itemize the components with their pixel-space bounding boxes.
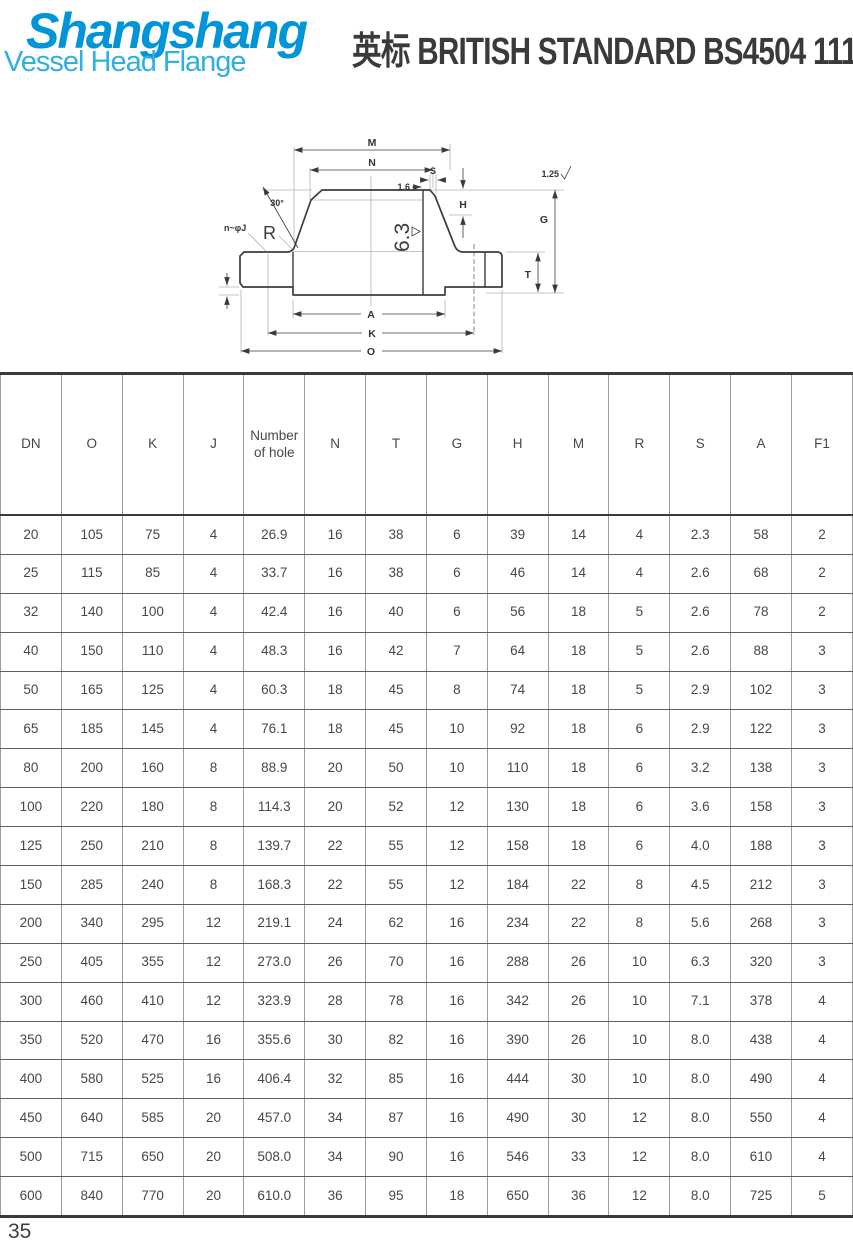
table-cell: 22 (548, 904, 609, 943)
table-cell: 220 (61, 788, 122, 827)
table-cell: 22 (305, 827, 366, 866)
table-cell: 34 (305, 1099, 366, 1138)
table-cell: 88 (731, 632, 792, 671)
table-cell: 150 (61, 632, 122, 671)
table-cell: 20 (183, 1177, 244, 1217)
table-cell: 715 (61, 1138, 122, 1177)
table-cell: 3 (791, 866, 852, 905)
page-title: 英标 BRITISH STANDARD BS4504 111 R F PN 16 (352, 20, 853, 75)
catalog-page: Shangshang Vessel Head Flange 英标 BRITISH… (0, 0, 853, 1252)
table-row: 65185145476.1184510921862.91223 (1, 710, 853, 749)
table-cell: 165 (61, 671, 122, 710)
table-cell: 4 (791, 1138, 852, 1177)
table-cell: 6 (426, 515, 487, 554)
table-cell: 725 (731, 1177, 792, 1217)
dim-label-h: H (459, 199, 467, 211)
table-cell: 115 (61, 554, 122, 593)
table-cell: 58 (731, 515, 792, 554)
dim-label-radius: R (263, 223, 276, 243)
table-cell: 340 (61, 904, 122, 943)
table-cell: 12 (609, 1099, 670, 1138)
table-header: DNOKJNumber of holeNTGHMRSAF1 (1, 374, 853, 516)
table-cell: 92 (487, 710, 548, 749)
table-cell: 42 (366, 632, 427, 671)
table-cell: 8 (183, 827, 244, 866)
col-header-s: S (670, 374, 731, 516)
table-cell: 4 (791, 1099, 852, 1138)
table-row: 20034029512219.12462162342285.62683 (1, 904, 853, 943)
surface-roughness-1-25: 1.25 (541, 169, 559, 179)
table-cell: 150 (1, 866, 62, 905)
table-cell: 6 (426, 593, 487, 632)
table-cell: 770 (122, 1177, 183, 1217)
table-cell: 410 (122, 982, 183, 1021)
table-cell: 12 (426, 788, 487, 827)
flange-inner-edges (293, 190, 485, 295)
table-cell: 18 (426, 1177, 487, 1217)
table-cell: 105 (61, 515, 122, 554)
table-cell: 234 (487, 904, 548, 943)
col-header-dn: DN (1, 374, 62, 516)
table-cell: 158 (487, 827, 548, 866)
table-cell: 12 (183, 943, 244, 982)
table-cell: 125 (122, 671, 183, 710)
table-cell: 460 (61, 982, 122, 1021)
table-row: 45064058520457.034871649030128.05504 (1, 1099, 853, 1138)
table-cell: 546 (487, 1138, 548, 1177)
table-row: 40150110448.316427641852.6883 (1, 632, 853, 671)
table-cell: 16 (305, 515, 366, 554)
table-cell: 78 (366, 982, 427, 1021)
table-cell: 16 (426, 1138, 487, 1177)
dim-label-bolt-holes: n~φJ (224, 223, 246, 233)
table-cell: 139.7 (244, 827, 305, 866)
table-cell: 38 (366, 554, 427, 593)
table-cell: 3 (791, 827, 852, 866)
table-cell: 56 (487, 593, 548, 632)
table-cell: 26 (548, 982, 609, 1021)
table-cell: 20 (183, 1099, 244, 1138)
page-number: 35 (8, 1220, 31, 1244)
table-cell: 8.0 (670, 1021, 731, 1060)
table-cell: 4 (183, 632, 244, 671)
table-cell: 4 (183, 593, 244, 632)
table-cell: 444 (487, 1060, 548, 1099)
table-cell: 16 (426, 904, 487, 943)
col-header-f1: F1 (791, 374, 852, 516)
table-cell: 4 (183, 515, 244, 554)
table-cell: 39 (487, 515, 548, 554)
table-cell: 188 (731, 827, 792, 866)
table-cell: 145 (122, 710, 183, 749)
dim-label-a: A (367, 309, 375, 321)
table-row: 80200160888.92050101101863.21383 (1, 749, 853, 788)
table-cell: 26 (548, 943, 609, 982)
table-cell: 32 (305, 1060, 366, 1099)
flange-dimension-table: DNOKJNumber of holeNTGHMRSAF1 2010575426… (0, 372, 853, 1218)
table-cell: 18 (548, 788, 609, 827)
table-cell: 10 (609, 943, 670, 982)
table-cell: 168.3 (244, 866, 305, 905)
table-cell: 26 (548, 1021, 609, 1060)
table-cell: 508.0 (244, 1138, 305, 1177)
table-cell: 140 (61, 593, 122, 632)
table-cell: 2.6 (670, 632, 731, 671)
table-cell: 102 (731, 671, 792, 710)
table-cell: 65 (1, 710, 62, 749)
table-cell: 6 (609, 710, 670, 749)
table-cell: 4 (183, 671, 244, 710)
table-cell: 180 (122, 788, 183, 827)
table-cell: 20 (305, 749, 366, 788)
col-header-a: A (731, 374, 792, 516)
table-cell: 580 (61, 1060, 122, 1099)
table-cell: 36 (548, 1177, 609, 1217)
dim-label-m: M (368, 137, 377, 149)
table-cell: 160 (122, 749, 183, 788)
table-cell: 28 (305, 982, 366, 1021)
dim-label-30deg: 30° (270, 198, 284, 208)
table-cell: 6 (609, 788, 670, 827)
logo-subtitle: Vessel Head Flange (4, 46, 246, 79)
table-cell: 550 (731, 1099, 792, 1138)
col-header-t: T (366, 374, 427, 516)
table-cell: 138 (731, 749, 792, 788)
table-cell: 22 (548, 866, 609, 905)
table-cell: 450 (1, 1099, 62, 1138)
col-header-m: M (548, 374, 609, 516)
table-cell: 38 (366, 515, 427, 554)
table-cell: 16 (426, 982, 487, 1021)
table-row: 25040535512273.026701628826106.33203 (1, 943, 853, 982)
table-row: 50165125460.318458741852.91023 (1, 671, 853, 710)
table-cell: 610 (731, 1138, 792, 1177)
dim-label-k: K (368, 328, 376, 340)
table-cell: 8.0 (670, 1099, 731, 1138)
table-cell: 16 (426, 1060, 487, 1099)
table-cell: 600 (1, 1177, 62, 1217)
table-cell: 46 (487, 554, 548, 593)
table-cell: 650 (122, 1138, 183, 1177)
table-cell: 273.0 (244, 943, 305, 982)
table-cell: 3.2 (670, 749, 731, 788)
table-cell: 125 (1, 827, 62, 866)
table-cell: 16 (305, 554, 366, 593)
table-cell: 2 (791, 554, 852, 593)
table-cell: 5 (609, 671, 670, 710)
table-cell: 585 (122, 1099, 183, 1138)
table-cell: 16 (305, 632, 366, 671)
table-cell: 285 (61, 866, 122, 905)
table-body: 2010575426.916386391442.35822511585433.7… (1, 515, 853, 1217)
table-cell: 10 (609, 982, 670, 1021)
table-cell: 3 (791, 710, 852, 749)
table-cell: 87 (366, 1099, 427, 1138)
table-cell: 110 (122, 632, 183, 671)
table-cell: 62 (366, 904, 427, 943)
table-cell: 5 (609, 593, 670, 632)
table-cell: 390 (487, 1021, 548, 1060)
col-header-o: O (61, 374, 122, 516)
table-cell: 438 (731, 1021, 792, 1060)
table-cell: 25 (1, 554, 62, 593)
table-cell: 18 (305, 710, 366, 749)
col-header-r: R (609, 374, 670, 516)
surface-roughness-6-3: 6.3 (391, 223, 414, 252)
dim-label-1-6: 1.6 (397, 182, 410, 192)
table-cell: 8 (183, 866, 244, 905)
table-cell: 32 (1, 593, 62, 632)
table-row: 1502852408168.32255121842284.52123 (1, 866, 853, 905)
table-cell: 30 (548, 1099, 609, 1138)
table-cell: 82 (366, 1021, 427, 1060)
table-cell: 85 (122, 554, 183, 593)
table-cell: 75 (122, 515, 183, 554)
table-cell: 3 (791, 788, 852, 827)
table-cell: 88.9 (244, 749, 305, 788)
table-cell: 7 (426, 632, 487, 671)
table-cell: 4 (609, 515, 670, 554)
table-cell: 184 (487, 866, 548, 905)
table-cell: 2 (791, 515, 852, 554)
table-cell: 6 (609, 749, 670, 788)
dim-label-t: T (525, 269, 532, 281)
table-row: 2010575426.916386391442.3582 (1, 515, 853, 554)
table-cell: 34 (305, 1138, 366, 1177)
table-row: 50071565020508.034901654633128.06104 (1, 1138, 853, 1177)
table-cell: 10 (426, 710, 487, 749)
table-row: 35052047016355.630821639026108.04384 (1, 1021, 853, 1060)
table-cell: 8.0 (670, 1177, 731, 1217)
table-cell: 10 (426, 749, 487, 788)
surface-finish-check-icon (561, 166, 571, 179)
table-cell: 457.0 (244, 1099, 305, 1138)
table-cell: 8 (609, 904, 670, 943)
col-header-n: N (305, 374, 366, 516)
table-cell: 3 (791, 943, 852, 982)
table-cell: 3.6 (670, 788, 731, 827)
table-cell: 8.0 (670, 1138, 731, 1177)
table-cell: 14 (548, 515, 609, 554)
table-cell: 6 (609, 827, 670, 866)
table-cell: 219.1 (244, 904, 305, 943)
col-header-h: H (487, 374, 548, 516)
table-cell: 405 (61, 943, 122, 982)
table-cell: 10 (609, 1060, 670, 1099)
table-cell: 16 (426, 1099, 487, 1138)
table-cell: 490 (731, 1060, 792, 1099)
table-cell: 40 (1, 632, 62, 671)
table-cell: 4 (791, 1060, 852, 1099)
table-cell: 8 (183, 788, 244, 827)
col-header-number-of-hole: Number of hole (244, 374, 305, 516)
table-row: 32140100442.416406561852.6782 (1, 593, 853, 632)
dim-label-s: S (430, 166, 436, 176)
table-row: 2511585433.716386461442.6682 (1, 554, 853, 593)
table-cell: 36 (305, 1177, 366, 1217)
table-cell: 26.9 (244, 515, 305, 554)
table-cell: 45 (366, 710, 427, 749)
table-cell: 18 (548, 827, 609, 866)
table-cell: 24 (305, 904, 366, 943)
title-english: BRITISH STANDARD BS4504 111 R F PN 16 (417, 31, 853, 73)
table-cell: 12 (609, 1138, 670, 1177)
table-cell: 74 (487, 671, 548, 710)
table-cell: 295 (122, 904, 183, 943)
table-cell: 323.9 (244, 982, 305, 1021)
table-cell: 18 (548, 749, 609, 788)
table-cell: 12 (426, 827, 487, 866)
dim-label-g: G (540, 214, 548, 226)
table-cell: 110 (487, 749, 548, 788)
table-cell: 4 (609, 554, 670, 593)
table-cell: 100 (122, 593, 183, 632)
table-cell: 400 (1, 1060, 62, 1099)
table-cell: 4 (791, 1021, 852, 1060)
table-cell: 4 (183, 554, 244, 593)
table-cell: 840 (61, 1177, 122, 1217)
table-cell: 200 (61, 749, 122, 788)
table-cell: 378 (731, 982, 792, 1021)
table-cell: 16 (426, 943, 487, 982)
table-row: 60084077020610.036951865036128.07255 (1, 1177, 853, 1217)
table-cell: 320 (731, 943, 792, 982)
table-cell: 2.9 (670, 671, 731, 710)
table-cell: 7.1 (670, 982, 731, 1021)
table-cell: 3 (791, 904, 852, 943)
table-cell: 48.3 (244, 632, 305, 671)
table-cell: 5.6 (670, 904, 731, 943)
dim-label-o: O (367, 346, 375, 358)
table-row: 1002201808114.32052121301863.61583 (1, 788, 853, 827)
table-cell: 8 (426, 671, 487, 710)
table-cell: 470 (122, 1021, 183, 1060)
flange-technical-drawing: M N S 1.6 30° n~φJ R 6.3 1.25 H G T A K … (200, 130, 630, 370)
table-cell: 55 (366, 827, 427, 866)
table-cell: 70 (366, 943, 427, 982)
table-cell: 5 (791, 1177, 852, 1217)
flange-cross-section-svg: M N S 1.6 30° n~φJ R 6.3 1.25 H G T A K … (200, 130, 630, 370)
table-cell: 8.0 (670, 1060, 731, 1099)
table-cell: 4.5 (670, 866, 731, 905)
table-cell: 60.3 (244, 671, 305, 710)
table-cell: 640 (61, 1099, 122, 1138)
table-cell: 18 (305, 671, 366, 710)
table-row: 40058052516406.432851644430108.04904 (1, 1060, 853, 1099)
table-cell: 16 (183, 1021, 244, 1060)
table-cell: 4.0 (670, 827, 731, 866)
table-cell: 55 (366, 866, 427, 905)
table-cell: 114.3 (244, 788, 305, 827)
table-cell: 30 (305, 1021, 366, 1060)
table-cell: 268 (731, 904, 792, 943)
table-cell: 490 (487, 1099, 548, 1138)
table-cell: 90 (366, 1138, 427, 1177)
table-cell: 6 (426, 554, 487, 593)
table-cell: 20 (1, 515, 62, 554)
table-cell: 100 (1, 788, 62, 827)
table-cell: 52 (366, 788, 427, 827)
table-cell: 130 (487, 788, 548, 827)
table-cell: 76.1 (244, 710, 305, 749)
table-cell: 2 (791, 593, 852, 632)
table-cell: 2.6 (670, 554, 731, 593)
col-header-j: J (183, 374, 244, 516)
table-cell: 10 (609, 1021, 670, 1060)
table-cell: 520 (61, 1021, 122, 1060)
table-cell: 3 (791, 749, 852, 788)
table-cell: 20 (183, 1138, 244, 1177)
table-cell: 3 (791, 632, 852, 671)
table-cell: 12 (183, 982, 244, 1021)
table-cell: 288 (487, 943, 548, 982)
dim-label-n: N (368, 157, 376, 169)
title-chinese: 英标 (352, 31, 410, 73)
table-cell: 240 (122, 866, 183, 905)
table-cell: 200 (1, 904, 62, 943)
table-cell: 42.4 (244, 593, 305, 632)
table-cell: 2.6 (670, 593, 731, 632)
table-cell: 3 (791, 671, 852, 710)
table-cell: 8 (183, 749, 244, 788)
table-cell: 33.7 (244, 554, 305, 593)
table-cell: 33 (548, 1138, 609, 1177)
table-cell: 212 (731, 866, 792, 905)
table-cell: 64 (487, 632, 548, 671)
table-cell: 18 (548, 593, 609, 632)
table-row: 30046041012323.928781634226107.13784 (1, 982, 853, 1021)
table-cell: 12 (609, 1177, 670, 1217)
table-cell: 525 (122, 1060, 183, 1099)
col-header-k: K (122, 374, 183, 516)
table-cell: 16 (426, 1021, 487, 1060)
table-cell: 80 (1, 749, 62, 788)
table-cell: 406.4 (244, 1060, 305, 1099)
table-cell: 50 (1, 671, 62, 710)
table-cell: 4 (183, 710, 244, 749)
table-cell: 14 (548, 554, 609, 593)
table-cell: 78 (731, 593, 792, 632)
table-cell: 350 (1, 1021, 62, 1060)
table-cell: 40 (366, 593, 427, 632)
table-cell: 8 (609, 866, 670, 905)
table-cell: 210 (122, 827, 183, 866)
table-cell: 12 (183, 904, 244, 943)
col-header-g: G (426, 374, 487, 516)
table-cell: 4 (791, 982, 852, 1021)
table-cell: 2.3 (670, 515, 731, 554)
table-cell: 95 (366, 1177, 427, 1217)
table-cell: 300 (1, 982, 62, 1021)
table-cell: 122 (731, 710, 792, 749)
table-cell: 6.3 (670, 943, 731, 982)
table-cell: 85 (366, 1060, 427, 1099)
table-cell: 18 (548, 632, 609, 671)
table-cell: 250 (1, 943, 62, 982)
table-cell: 2.9 (670, 710, 731, 749)
radius-leader (279, 236, 292, 249)
table-cell: 16 (183, 1060, 244, 1099)
table-cell: 12 (426, 866, 487, 905)
table-cell: 22 (305, 866, 366, 905)
table-cell: 16 (305, 593, 366, 632)
table-cell: 342 (487, 982, 548, 1021)
table-cell: 26 (305, 943, 366, 982)
table-row: 1252502108139.72255121581864.01883 (1, 827, 853, 866)
table-cell: 250 (61, 827, 122, 866)
table-header-row: DNOKJNumber of holeNTGHMRSAF1 (1, 374, 853, 516)
table-cell: 5 (609, 632, 670, 671)
